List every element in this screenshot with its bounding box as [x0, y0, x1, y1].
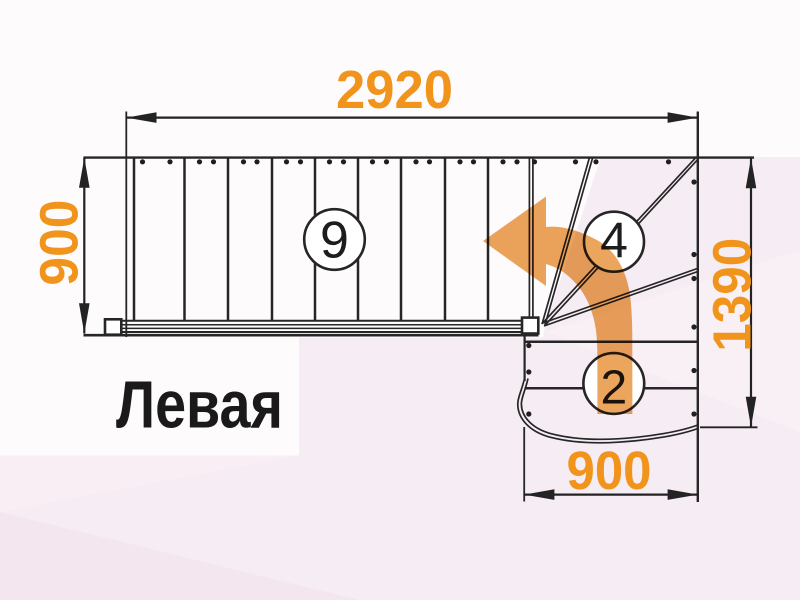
- svg-text:1390: 1390: [702, 238, 762, 352]
- svg-text:Левая: Левая: [116, 368, 283, 443]
- svg-text:9: 9: [320, 212, 349, 270]
- svg-text:900: 900: [567, 441, 652, 501]
- svg-text:900: 900: [30, 200, 90, 286]
- svg-text:2920: 2920: [336, 60, 453, 120]
